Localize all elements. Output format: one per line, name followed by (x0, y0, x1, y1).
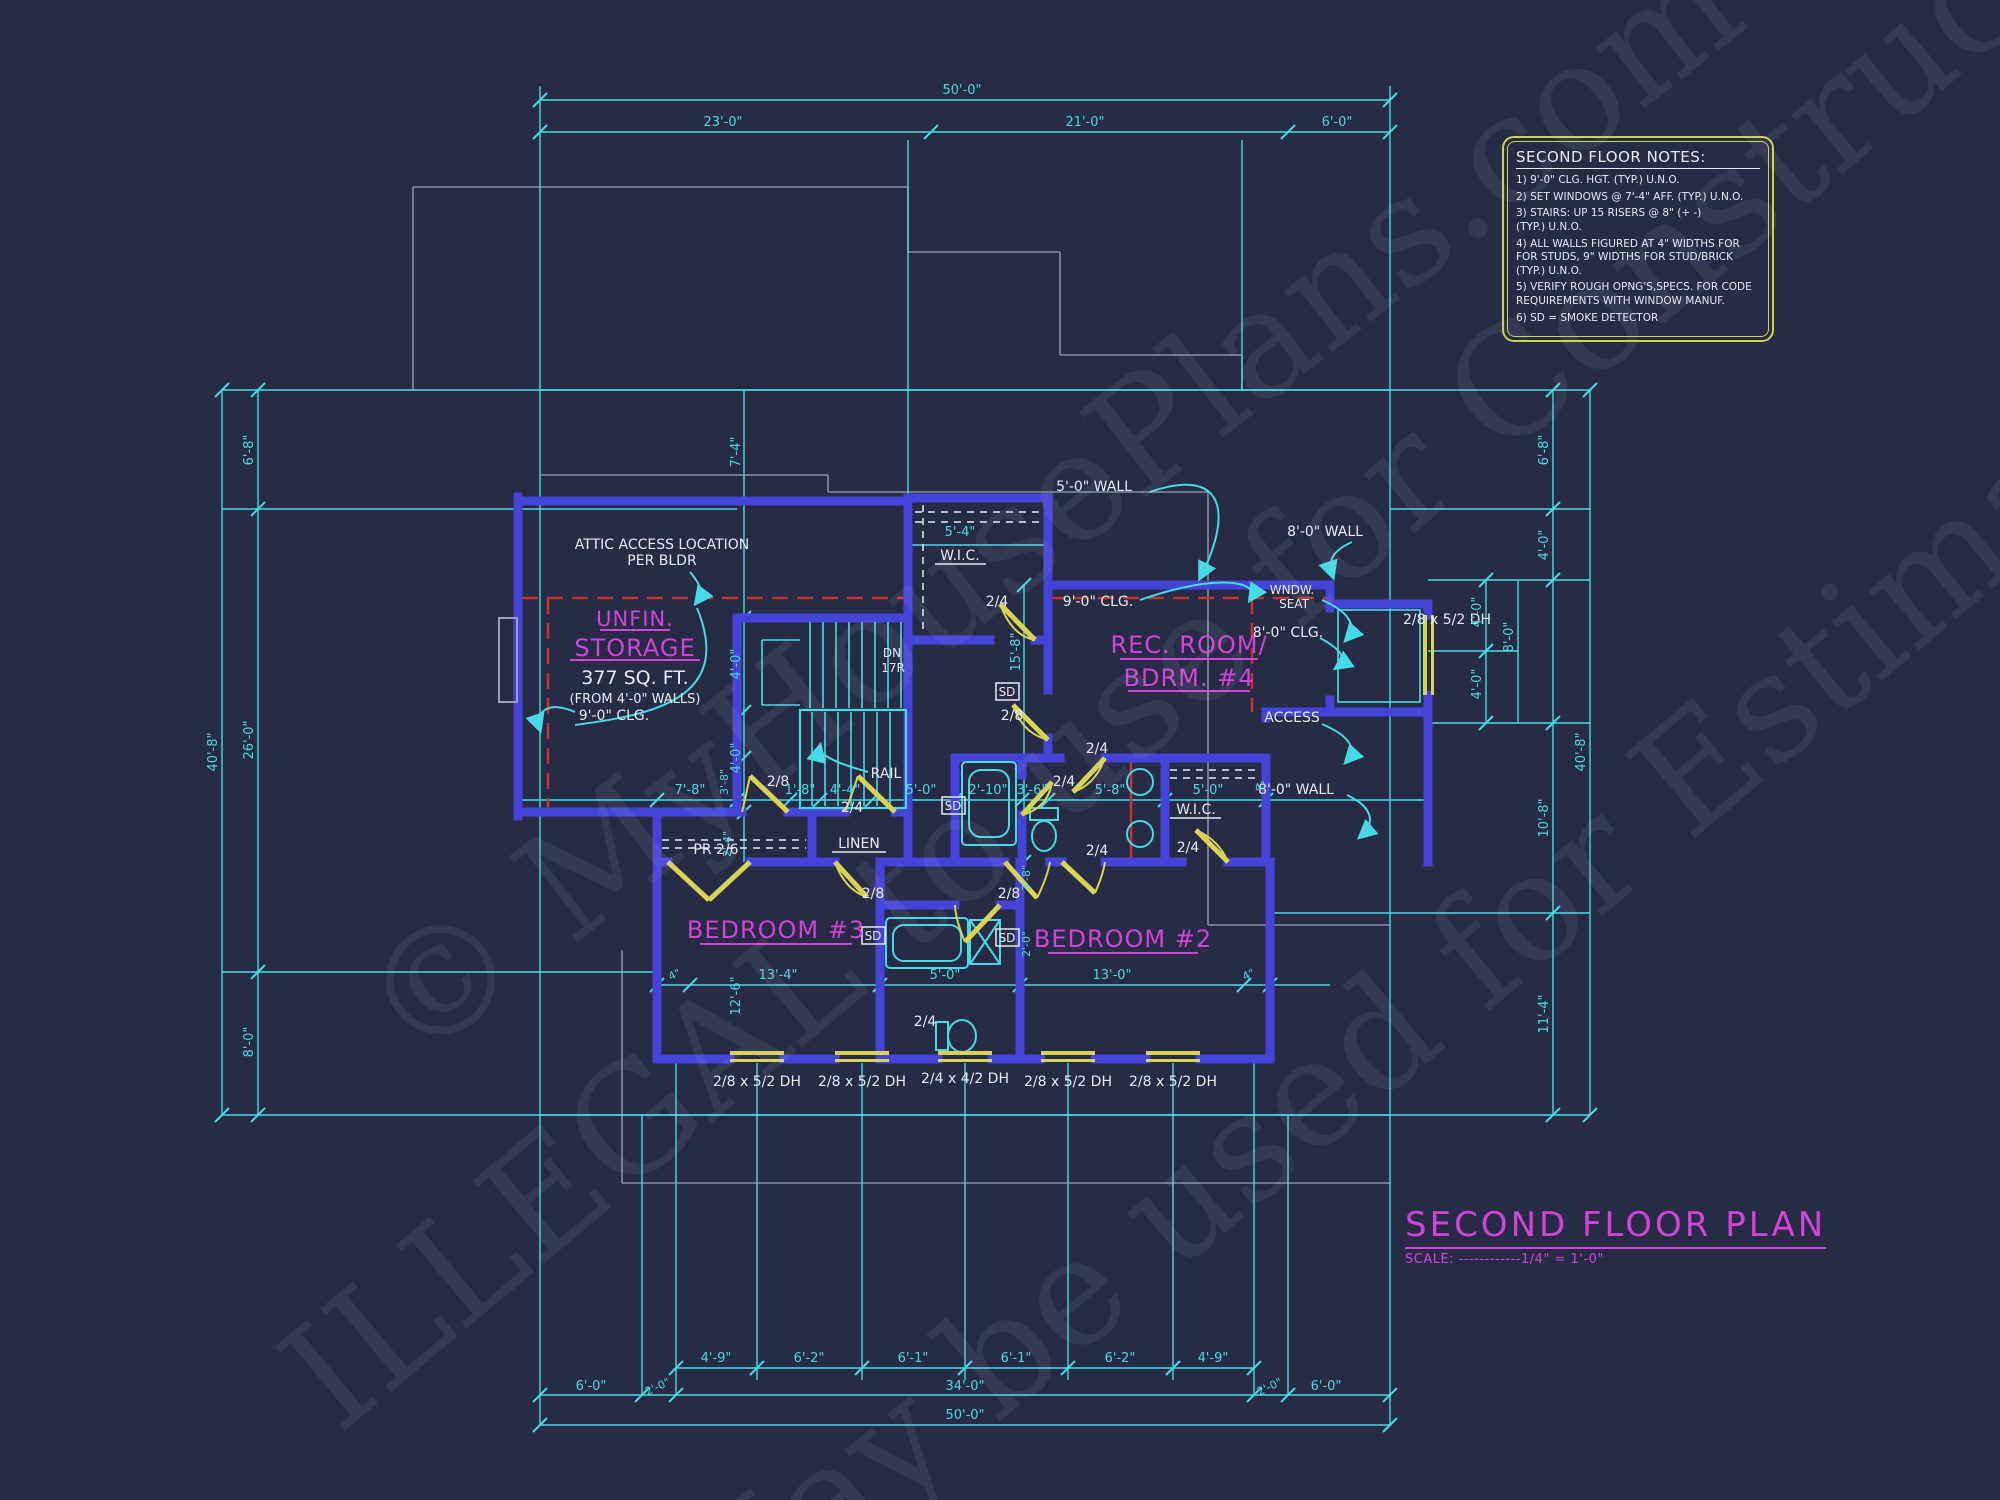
sd-label-3: SD (865, 929, 882, 943)
clg8-label: 8'-0" CLG. (1253, 625, 1323, 641)
dim-int-13: 13'-0" (1092, 968, 1131, 983)
dim-top-3: 6'-0" (1322, 115, 1353, 130)
clg-storage-label: 9'-0" CLG. (579, 708, 649, 724)
storage-note: (FROM 4'-0" WALLS) (570, 692, 701, 707)
dim-right-7: 11'-4" (1537, 994, 1552, 1033)
dim-bot-4: 6'-1" (1001, 1351, 1032, 1366)
rail-label: RAIL (871, 766, 902, 782)
wndw-seat-label-2: SEAT (1279, 597, 1309, 611)
dim-right-6: 10'-8" (1537, 798, 1552, 837)
dim-bot-11: 6'-0" (1311, 1379, 1342, 1394)
walls (518, 497, 1428, 1059)
dim-int-6: 3'-6" (1017, 783, 1048, 798)
plan-title: SECOND FLOOR PLAN (1405, 1205, 1826, 1249)
dim-int-17: 4'-0" (729, 649, 744, 680)
dim-bot-overall: 50'-0" (945, 1408, 984, 1423)
dim-bot-1: 4'-9" (701, 1351, 732, 1366)
notes-title: SECOND FLOOR NOTES: (1516, 148, 1760, 169)
dim-int-21: 15'-8" (1009, 632, 1024, 671)
dim-int-20: 2'-4" (721, 831, 734, 857)
bedroom3-label: BEDROOM #3 (687, 916, 865, 944)
dim-right-3: 8'-0" (1502, 622, 1517, 653)
note-item-1: 1) 9'-0" CLG. HGT. (TYP.) U.N.O. (1516, 174, 1760, 188)
storage-sqft: 377 SQ. FT. (581, 667, 688, 689)
window-label-1: 2/8 x 5/2 DH (713, 1074, 801, 1090)
rec-room-label-1: REC. ROOM/ (1110, 631, 1267, 659)
dim-right-4: 4'-0" (1470, 597, 1485, 628)
clg-rec-label: 9'-0" CLG. (1063, 594, 1133, 610)
dim-bot-7: 6'-0" (576, 1379, 607, 1394)
dim-int-22: 12'-6" (729, 976, 744, 1015)
note-item-3: 3) STAIRS: UP 15 RISERS @ 8" (+ -) (TYP.… (1516, 207, 1760, 234)
second-floor-notes-box: SECOND FLOOR NOTES: 1) 9'-0" CLG. HGT. (… (1502, 136, 1774, 342)
wall8-low-label: 8'-0" WALL (1258, 782, 1334, 798)
note-item-4: 4) ALL WALLS FIGURED AT 4" WIDTHS FOR FO… (1516, 238, 1760, 279)
dim-bot-5: 6'-2" (1105, 1351, 1136, 1366)
dim-left-3: 8'-0" (242, 1027, 257, 1058)
notes-inner-border: SECOND FLOOR NOTES: 1) 9'-0" CLG. HGT. (… (1507, 141, 1769, 337)
dim-bot-2: 6'-2" (794, 1351, 825, 1366)
door-label-5: 2/4 (1086, 843, 1109, 859)
door-label-8: 2/8 (998, 886, 1021, 902)
sd-label-4: SD (999, 931, 1016, 945)
wic-top-label: W.I.C. (940, 548, 980, 564)
dim-bot-6: 4'-9" (1198, 1351, 1229, 1366)
dim-int-7: 5'-8" (1095, 783, 1126, 798)
attic-note-1: ATTIC ACCESS LOCATION (575, 537, 749, 553)
dim-int-2: 1'-8" (785, 783, 816, 798)
floor-plan-page: © MyHousePlans.com ILLEGAL to use for Co… (0, 0, 2000, 1500)
bedroom2-label: BEDROOM #2 (1034, 925, 1212, 953)
dim-int-11: 13'-4" (758, 968, 797, 983)
note-item-2: 2) SET WINDOWS @ 7'-4" AFF. (TYP.) U.N.O… (1516, 191, 1760, 205)
window-label-2: 2/8 x 5/2 DH (818, 1074, 906, 1090)
note-item-5: 5) VERIFY ROUGH OPNG'S,SPECS. FOR CODE R… (1516, 281, 1760, 308)
dim-int-1: 7'-8" (675, 783, 706, 798)
dim-int-18: 4'-0" (729, 743, 744, 774)
door-label-11: 2/4 (914, 1014, 937, 1030)
wall5-label: 5'-0" WALL (1056, 479, 1132, 495)
dim-bot-3: 6'-1" (898, 1351, 929, 1366)
door-label-3: 2/4 (1086, 741, 1109, 757)
dim-right-2: 4'-0" (1537, 530, 1552, 561)
dim-left-2: 26'-0" (242, 720, 257, 759)
rec-room-label-2: BDRM. #4 (1124, 664, 1255, 692)
storage-label-2: STORAGE (574, 634, 695, 662)
dim-top-2: 21'-0" (1065, 115, 1104, 130)
window-label-4: 2/8 x 5/2 DH (1024, 1074, 1112, 1090)
wndw-seat-label-1: WNDW. (1270, 583, 1314, 597)
tub-upper (962, 762, 1016, 845)
dim-int-12: 5'-0" (930, 968, 961, 983)
door-label-2: 2/8 (1001, 708, 1024, 724)
window-label-3: 2/4 x 4/2 DH (921, 1071, 1009, 1087)
wic-2-label: W.I.C. (1176, 802, 1216, 818)
sd-label-1: SD (999, 685, 1016, 699)
dim-int-4: 5'-0" (906, 783, 937, 798)
dim-int-10: 4" (666, 966, 682, 983)
dim-int-16: 7'-4" (729, 437, 744, 468)
linen-label: LINEN (838, 836, 880, 852)
dim-right-overall: 40'-8" (1574, 732, 1589, 771)
dim-int-8: 5'-0" (1193, 783, 1224, 798)
door-label-10: 2/4 (841, 800, 864, 816)
door-label-7: 2/8 (862, 886, 885, 902)
sd-label-2: SD (945, 799, 962, 813)
note-item-6: 6) SD = SMOKE DETECTOR (1516, 312, 1760, 326)
toilet-lower (936, 1022, 948, 1050)
dim-int-5: 2'-10" (968, 783, 1007, 798)
attic-note-2: PER BLDR (627, 553, 697, 569)
dim-int-24: 2'-0" (1020, 931, 1033, 957)
dim-int-3: 4'-4" (830, 783, 861, 798)
dim-int-23: 3'-8" (1020, 865, 1033, 891)
wall8-top-label: 8'-0" WALL (1287, 524, 1363, 540)
dim-int-19: 3'-8" (718, 769, 731, 795)
dim-top-1: 23'-0" (703, 115, 742, 130)
dim-bot-9: 34'-0" (945, 1379, 984, 1394)
access-label: ACCESS (1264, 710, 1320, 726)
dim-left-overall: 40'-8" (206, 732, 221, 771)
window-label-5: 2/8 x 5/2 DH (1129, 1074, 1217, 1090)
dim-left-1: 6'-8" (242, 435, 257, 466)
dim-top-overall: 50'-0" (942, 83, 981, 98)
stairs-17r-label: 17R (881, 661, 905, 675)
storage-label-1: UNFIN. (596, 607, 674, 631)
stairs-dn-label: DN (883, 646, 901, 660)
plan-scale: SCALE: ------------1/4" = 1'-0" (1405, 1252, 1826, 1267)
door-label-6: 2/4 (1177, 840, 1200, 856)
door-label-1: 2/4 (986, 594, 1009, 610)
dim-int-15: 5'-4" (945, 525, 976, 540)
dim-right-5: 4'-0" (1470, 669, 1485, 700)
door-label-4: 2/4 (1053, 774, 1076, 790)
dim-right-1: 6'-8" (1537, 435, 1552, 466)
dim-int-14: 4" (1240, 966, 1256, 983)
title-block: SECOND FLOOR PLAN SCALE: ------------1/4… (1405, 1205, 1826, 1267)
